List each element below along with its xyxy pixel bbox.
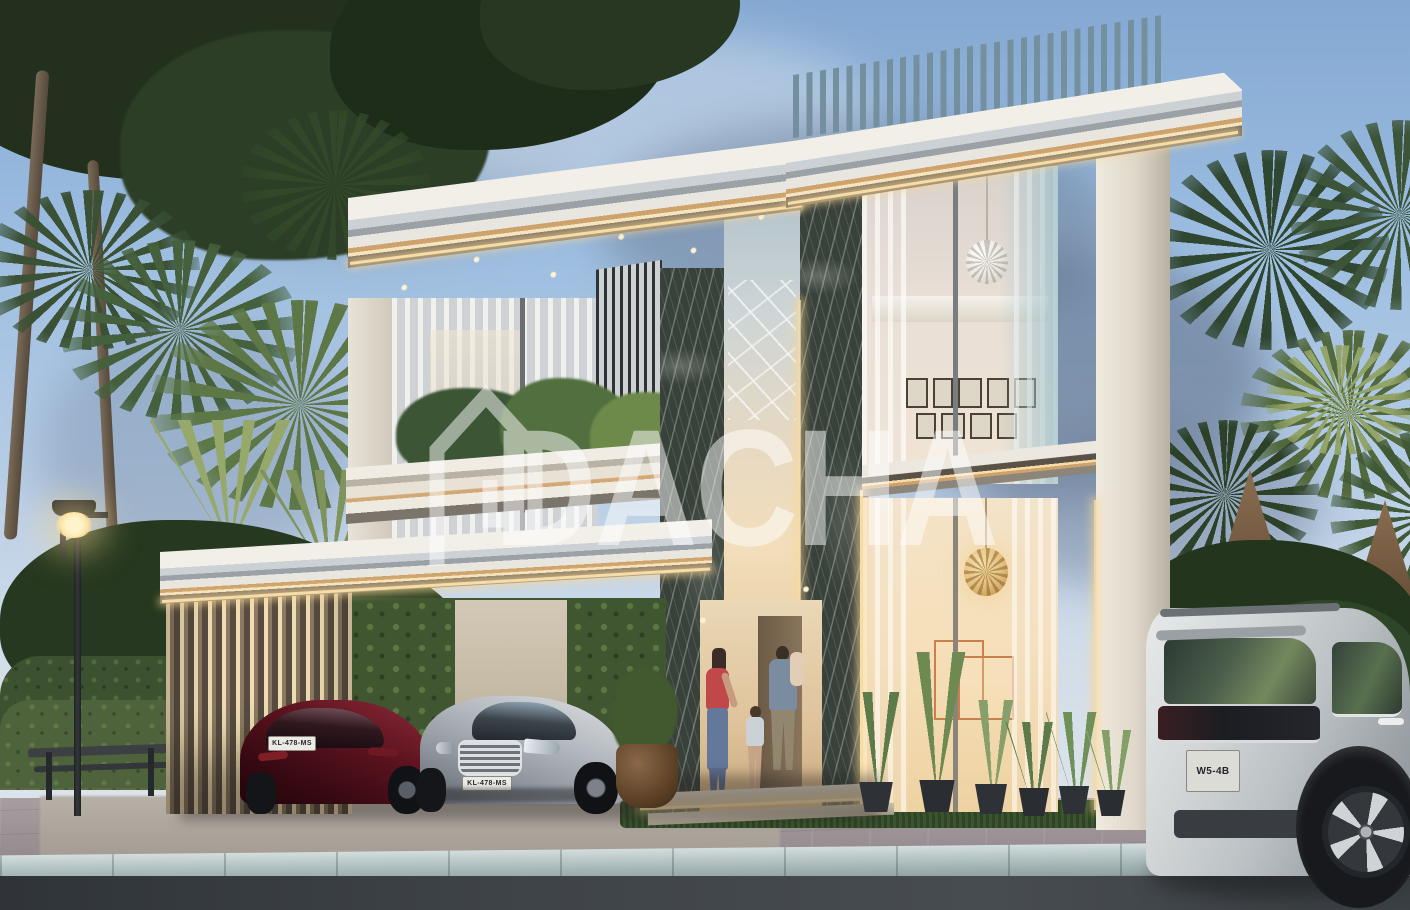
suv-bumper-diffuser xyxy=(1174,810,1302,838)
held-child xyxy=(790,652,804,686)
gold-pendant-lamp xyxy=(964,548,1008,596)
picture-frame xyxy=(958,378,982,408)
suv-side-window xyxy=(1332,642,1402,717)
glass-reflection xyxy=(1000,166,1058,484)
red-hatchback-car: KL-478-MS xyxy=(240,686,432,818)
picture-frame xyxy=(933,378,953,408)
picture-frame xyxy=(970,413,992,439)
car-headlight xyxy=(436,742,454,754)
window-mullion xyxy=(953,166,958,484)
car-wheel xyxy=(246,772,276,814)
license-plate: W5-4B xyxy=(1186,750,1240,792)
bench-leg xyxy=(148,748,154,796)
lamp-glow xyxy=(56,512,92,538)
sheer-curtains xyxy=(862,166,906,484)
car-wheel xyxy=(416,768,446,812)
suv-taillight-band xyxy=(1158,706,1320,743)
suv-exhaust xyxy=(1192,838,1210,848)
white-suv: W5-4B xyxy=(1146,598,1410,910)
license-plate: KL-478-MS xyxy=(268,736,316,751)
picture-frame xyxy=(916,413,936,439)
pendant-stem xyxy=(985,498,987,550)
urn-pot xyxy=(616,744,678,808)
suv-wheel-rim xyxy=(1322,786,1410,878)
pendant-stem xyxy=(986,166,988,242)
lamp-pole xyxy=(74,540,81,816)
picture-frame xyxy=(906,378,928,408)
bench-leg xyxy=(46,752,52,800)
car-grille xyxy=(458,740,522,776)
child-shirt xyxy=(746,717,764,747)
car-headlight xyxy=(523,738,560,755)
silver-sedan-car: KL-478-MS xyxy=(420,684,624,818)
suv-rear-window xyxy=(1164,638,1316,704)
suv-door-handle xyxy=(1378,718,1404,725)
car-wheel xyxy=(574,762,618,814)
villa-dusk-render: KL-478-MS KL-478-MS xyxy=(0,0,1410,910)
woman-jeans xyxy=(707,708,728,770)
glass-branch-decal xyxy=(728,280,796,420)
